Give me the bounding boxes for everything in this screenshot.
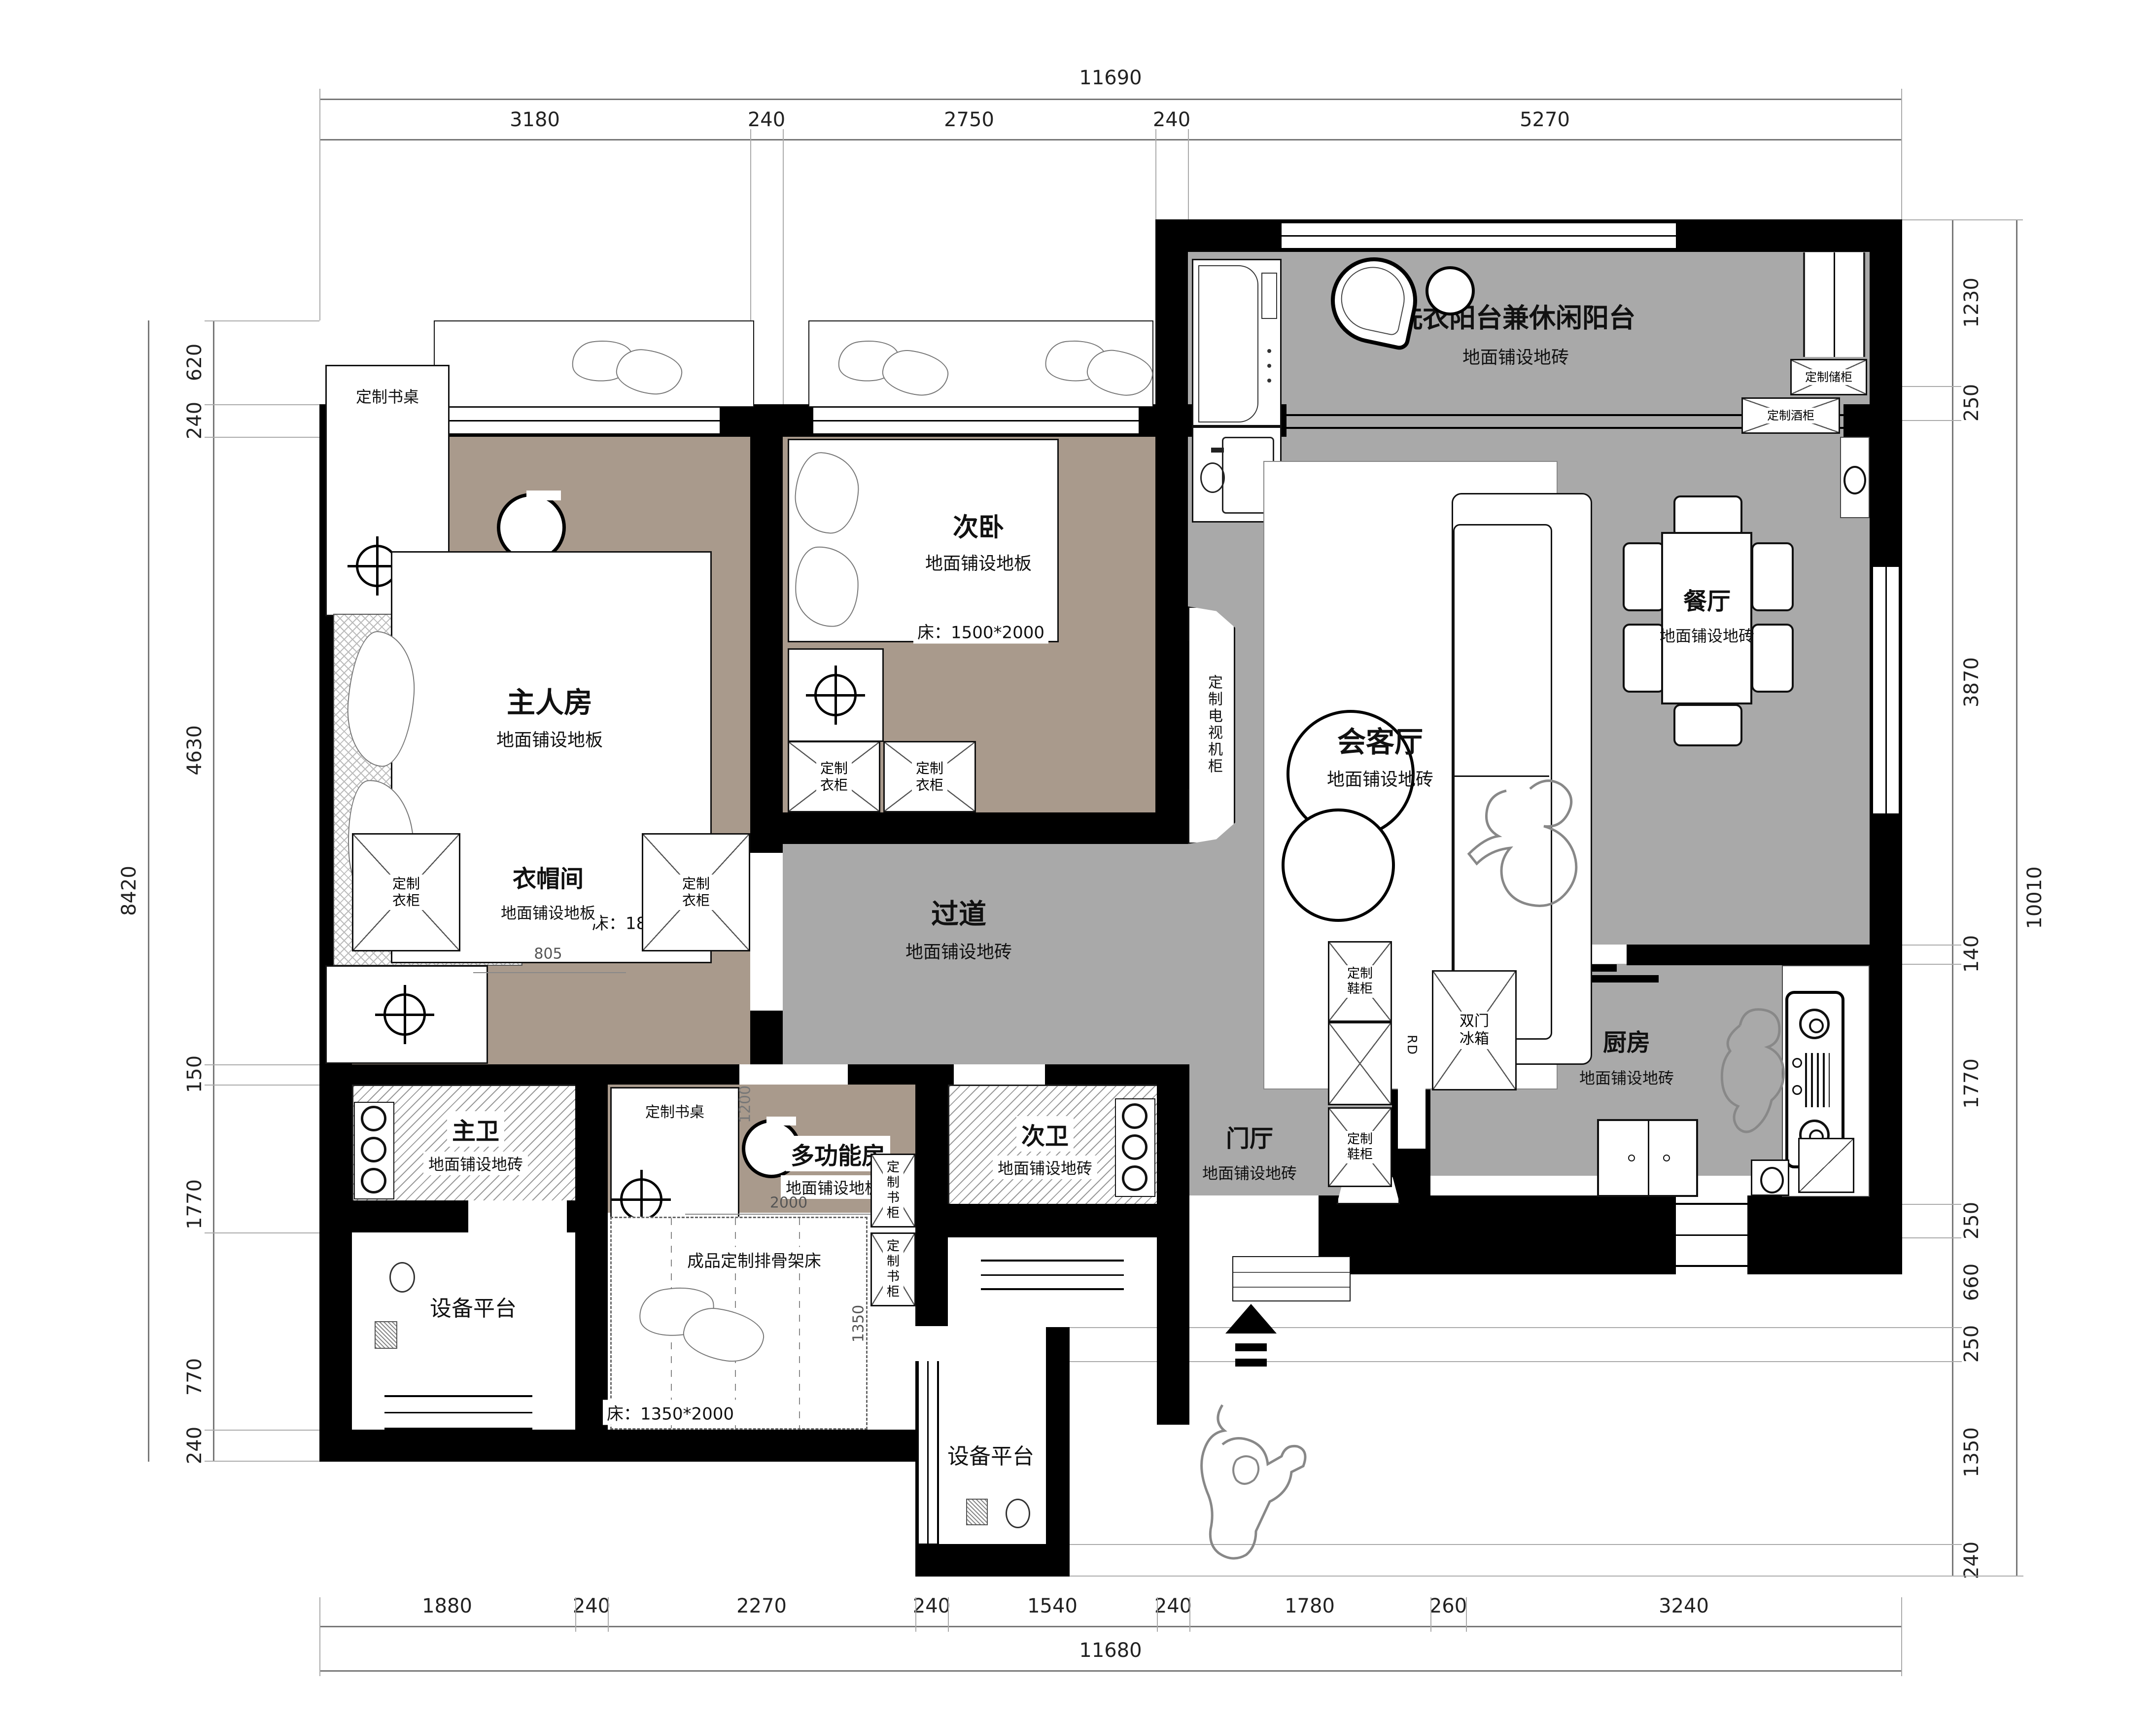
room-name-dining: 餐厅 — [1683, 582, 1731, 616]
dim-right-seg: 1770 — [1960, 1054, 1983, 1113]
dim-right-seg: 140 — [1960, 931, 1983, 977]
platform-left-label: 设备平台 — [430, 1291, 517, 1322]
room-name-master-bath: 主卫 — [447, 1111, 504, 1147]
dim-top-seg: 3180 — [506, 108, 564, 131]
room-name-living: 会客厅 — [1337, 719, 1423, 760]
dim-line-right-segments — [1952, 219, 1953, 1577]
shoe-cabinet-1: 定制鞋柜 — [1328, 941, 1392, 1022]
dim-multi-door: 1200 — [737, 1086, 754, 1123]
dim-bottom-seg: 1540 — [1023, 1595, 1081, 1617]
dim-right-seg: 1350 — [1960, 1423, 1983, 1481]
door-multi — [739, 1064, 848, 1085]
dim-bottom-seg: 3240 — [1655, 1595, 1713, 1617]
dim-bottom-seg: 1780 — [1281, 1595, 1339, 1617]
dim-left-total: 8420 — [118, 862, 140, 920]
dim-left-seg: 240 — [183, 1423, 206, 1468]
dim-right-seg: 3870 — [1960, 653, 1983, 711]
bed-size-second: 床：1500*2000 — [913, 619, 1048, 644]
room-name-cloak: 衣帽间 — [508, 859, 589, 894]
dim-left-seg: 1770 — [183, 1175, 206, 1233]
dim-line-bottom-segments — [319, 1626, 1902, 1627]
fridge: 双门冰箱 — [1432, 970, 1517, 1090]
bed-size-multi: 床：1350*2000 — [603, 1400, 738, 1425]
dim-left-seg: 150 — [183, 1052, 206, 1097]
balcony-table — [1426, 266, 1475, 316]
room-name-second: 次卧 — [953, 507, 1004, 544]
room-floor-second-bath: 地面铺设地砖 — [993, 1156, 1097, 1179]
room-floor-kitchen: 地面铺设地砖 — [1579, 1066, 1674, 1088]
person-in-kitchen — [1701, 996, 1799, 1149]
room-floor-corridor: 地面铺设地砖 — [905, 938, 1012, 963]
door-second-bath — [954, 1064, 1045, 1085]
person-entering — [1193, 1395, 1301, 1582]
wine-cabinet: 定制酒柜 — [1741, 397, 1840, 434]
room-floor-living: 地面铺设地砖 — [1327, 765, 1433, 791]
dim-left-seg: 240 — [183, 398, 206, 443]
dim-top-seg: 2750 — [940, 108, 998, 131]
dim-right-seg: 660 — [1960, 1260, 1983, 1305]
dim-line-top-segments — [319, 139, 1902, 140]
dim-bottom-total: 11680 — [1075, 1639, 1146, 1662]
dining-chair — [1623, 624, 1665, 693]
dim-bottom-seg: 1880 — [418, 1595, 476, 1617]
dim-right-seg: 250 — [1960, 1321, 1983, 1367]
dim-top-seg: 240 — [744, 108, 789, 131]
dim-bottom-seg: 260 — [1426, 1595, 1471, 1617]
bed-second — [788, 439, 1059, 642]
window-platform-bottom — [917, 1361, 939, 1544]
window-alley — [981, 1260, 1124, 1290]
mop-pool — [1798, 1138, 1854, 1193]
door-master-bath — [468, 1200, 567, 1232]
dim-right-seg: 1230 — [1960, 274, 1983, 332]
person-on-sofa — [1469, 769, 1577, 927]
room-name-second-bath: 次卫 — [1016, 1116, 1074, 1152]
shoe-cabinet-2 — [1328, 1022, 1392, 1105]
dim-right-total: 10010 — [2023, 862, 2046, 933]
room-floor-dining: 地面铺设地砖 — [1660, 624, 1754, 646]
wardrobe-cloak-left: 定制衣柜 — [352, 833, 460, 951]
window-kitchen-bottom — [1676, 1203, 1747, 1267]
bed-name-multi: 成品定制排骨架床 — [683, 1247, 825, 1272]
window-living-right — [1871, 567, 1901, 813]
dim-bottom-seg: 2270 — [732, 1595, 791, 1617]
dining-chair — [1673, 704, 1742, 746]
wardrobe-second-1: 定制衣柜 — [788, 741, 880, 812]
floor-corridor — [783, 844, 1189, 1085]
storage-cabinet: 定制储柜 — [1790, 359, 1867, 395]
symbol-crosshair — [620, 1178, 662, 1221]
room-name-entry: 门厅 — [1226, 1119, 1273, 1154]
window-second-top — [813, 406, 1139, 435]
dining-table — [1661, 532, 1752, 704]
room-floor-master: 地面铺设地板 — [496, 726, 603, 751]
kitchen-rd-label: RD — [1404, 1035, 1419, 1055]
room-name-corridor: 过道 — [931, 892, 986, 932]
dim-multi-width: 2000 — [770, 1194, 807, 1212]
balcony-right-cabinet — [1803, 252, 1865, 357]
tv-screen — [1182, 641, 1188, 789]
dim-line-left-total — [148, 320, 149, 1462]
floor-plan: 11690 3180 240 2750 240 5270 1880 240 22… — [0, 0, 2156, 1720]
window-master-top — [444, 406, 720, 435]
window-balcony-top — [1282, 221, 1676, 250]
dim-left-seg: 770 — [183, 1354, 206, 1400]
dim-line-right-total — [2016, 219, 2017, 1577]
wardrobe-second-2: 定制衣柜 — [883, 741, 976, 812]
room-floor-entry: 地面铺设地砖 — [1202, 1161, 1297, 1184]
dining-chair — [1751, 542, 1794, 611]
bookcase-1: 定制书柜 — [870, 1154, 916, 1228]
dim-top-seg: 240 — [1149, 108, 1194, 131]
symbol-crosshair — [814, 674, 857, 716]
desk-master-label: 定制书桌 — [356, 385, 419, 407]
dining-chair — [1751, 624, 1794, 693]
room-floor-balcony: 地面铺设地砖 — [1462, 343, 1569, 369]
symbol-crosshair — [383, 993, 426, 1036]
room-floor-cloak: 地面铺设地板 — [496, 900, 600, 924]
floor-balcony — [1188, 252, 1870, 420]
dining-chair — [1623, 542, 1665, 611]
dim-top-seg: 5270 — [1516, 108, 1574, 131]
dim-multi-depth: 1350 — [850, 1305, 868, 1342]
dim-line-bottom-total — [319, 1670, 1902, 1672]
desk-multi-label: 定制书桌 — [645, 1100, 704, 1122]
dim-left-seg: 620 — [183, 340, 206, 385]
room-name-kitchen: 厨房 — [1603, 1023, 1650, 1057]
tv-cabinet-label: 定制电视机柜 — [1203, 674, 1224, 775]
shoe-cabinet-3: 定制鞋柜 — [1328, 1107, 1392, 1187]
coffee-table — [1282, 808, 1395, 922]
kitchen-sink-cabinet — [1597, 1119, 1698, 1197]
dim-left-seg: 4630 — [183, 721, 206, 779]
dim-line-left-segments — [213, 320, 214, 1462]
dim-line-top-total — [319, 99, 1902, 100]
door-master — [750, 853, 783, 1011]
dim-right-seg: 250 — [1960, 380, 1983, 425]
washing-machine — [1192, 259, 1282, 426]
entry-step — [1232, 1256, 1351, 1301]
bookcase-2: 定制书柜 — [870, 1232, 916, 1306]
platform-bottom-label: 设备平台 — [947, 1439, 1034, 1470]
wash-basin — [1751, 1159, 1789, 1196]
room-name-master: 主人房 — [507, 679, 592, 721]
room-floor-second: 地面铺设地板 — [925, 549, 1032, 575]
window-platform-left — [384, 1395, 532, 1430]
dim-top-total: 11690 — [1075, 67, 1146, 89]
entry-arrow-icon — [1225, 1304, 1277, 1334]
dim-right-seg: 250 — [1960, 1198, 1983, 1243]
wardrobe-cloak-right: 定制衣柜 — [642, 833, 750, 951]
dim-cloak-opening: 805 — [534, 946, 562, 963]
room-floor-master-bath: 地面铺设地砖 — [423, 1152, 528, 1175]
